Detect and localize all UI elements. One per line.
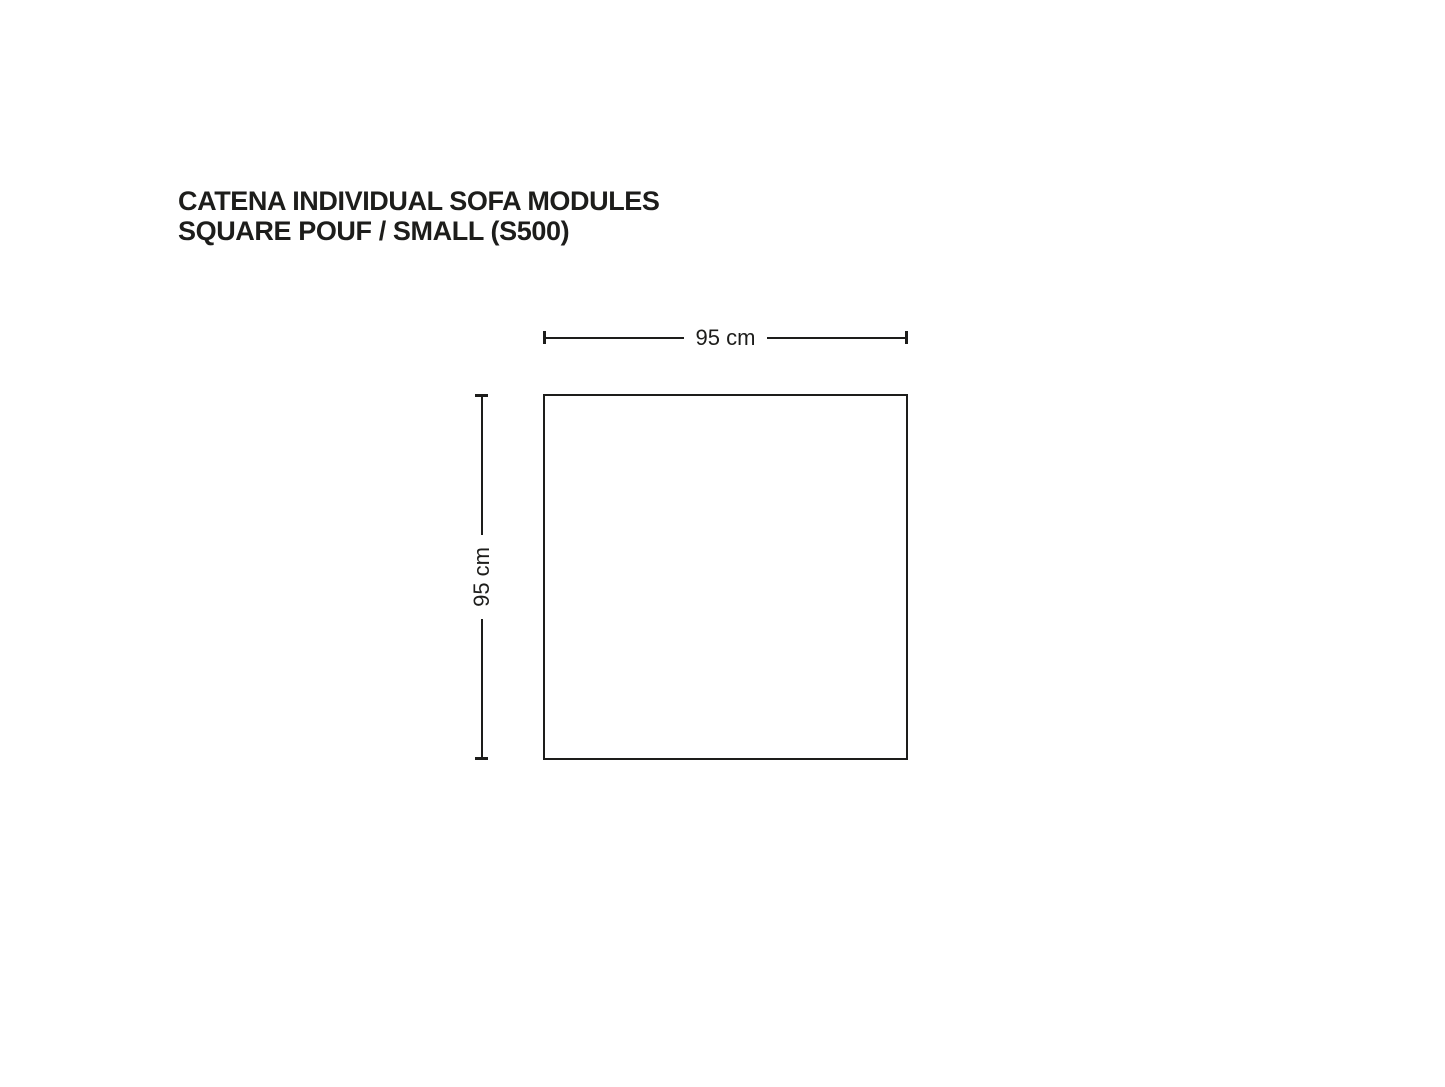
width-dimension-tick-right bbox=[905, 331, 908, 344]
height-dimension-label: 95 cm bbox=[469, 535, 495, 619]
height-dimension-line-top bbox=[481, 397, 483, 535]
width-dimension-line-left bbox=[546, 337, 684, 339]
height-dimension-tick-bottom bbox=[475, 757, 488, 760]
product-title-line-1: CATENA INDIVIDUAL SOFA MODULES bbox=[178, 186, 660, 216]
page-canvas: CATENA INDIVIDUAL SOFA MODULES SQUARE PO… bbox=[0, 0, 1445, 1087]
product-title-line-2: SQUARE POUF / SMALL (S500) bbox=[178, 216, 660, 246]
width-dimension-line-right bbox=[767, 337, 905, 339]
width-dimension: 95 cm bbox=[543, 331, 908, 344]
height-dimension-line-bottom bbox=[481, 619, 483, 757]
height-dimension: 95 cm bbox=[475, 394, 488, 760]
width-dimension-label: 95 cm bbox=[684, 331, 768, 344]
product-title: CATENA INDIVIDUAL SOFA MODULES SQUARE PO… bbox=[178, 186, 660, 246]
pouf-footprint-outline bbox=[543, 394, 908, 760]
